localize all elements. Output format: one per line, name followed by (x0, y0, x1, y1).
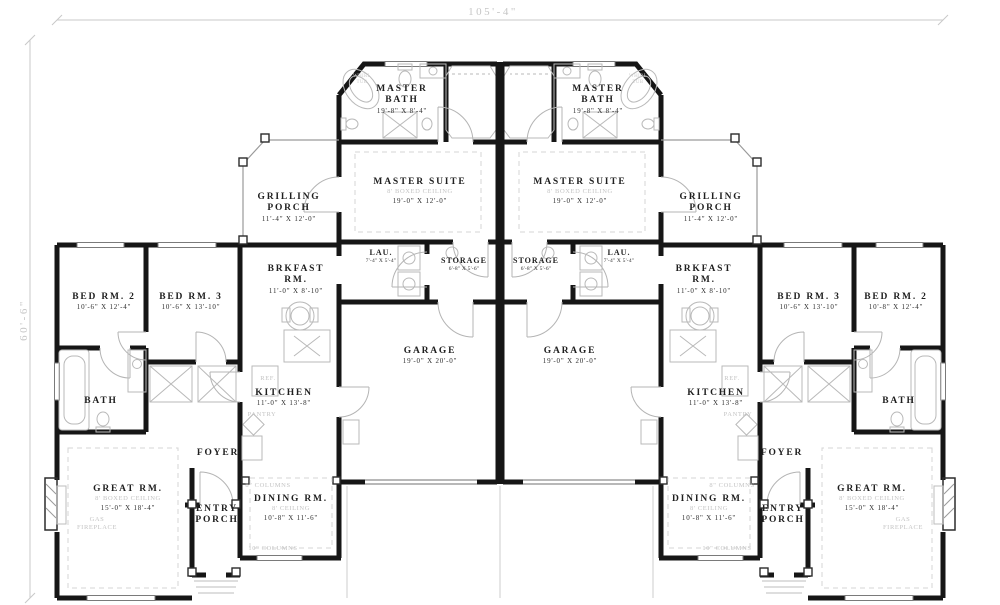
fixture-name: FIREPLACE (883, 524, 923, 532)
room-size: 10'-8" X 12'-4" (869, 303, 923, 312)
columns-note: 10" COLUMNS (248, 545, 297, 553)
room-name: BATH (84, 396, 117, 407)
label-gas-fireplace-left: GAS FIREPLACE (77, 516, 117, 532)
room-size: 10'-6" X 13'-10" (162, 303, 221, 312)
room-name: GREAT RM. (93, 484, 163, 495)
floor-plan-canvas: 105'-4" 60'-6" MASTER BATH 19'-8" X 8'-4… (0, 0, 1000, 605)
driveway-lines (347, 486, 653, 598)
label-grilling-porch-right: GRILLING PORCH 11'-4" X 12'-0" (680, 192, 743, 224)
room-note: 8' BOXED CEILING (547, 188, 613, 196)
room-size: 11'-4" X 12'-0" (262, 215, 316, 224)
label-bath-right: BATH (882, 396, 915, 407)
room-note: 8' BOXED CEILING (839, 495, 905, 503)
label-columns10-left: 10" COLUMNS (248, 545, 297, 553)
label-bed3-left: BED RM. 3 10'-6" X 13'-10" (159, 292, 222, 313)
room-size: 7'-4" X 5'-4" (366, 258, 396, 265)
label-bath-left: BATH (84, 396, 117, 407)
room-name: BRKFAST (268, 264, 325, 275)
fixture-name: GAS (896, 516, 911, 524)
label-bed2-left: BED RM. 2 10'-6" X 12'-4" (72, 292, 135, 313)
room-size: 11'-4" X 12'-0" (684, 215, 738, 224)
room-name: BRKFAST (676, 264, 733, 275)
room-name: BED RM. 2 (864, 292, 927, 303)
room-note: 8' CEILING (690, 505, 728, 513)
label-pantry-right: PANTRY (724, 411, 753, 419)
label-ref-right: REF. (724, 375, 739, 383)
room-name: ENTRY (196, 504, 238, 515)
room-name: PORCH (689, 203, 732, 214)
room-name: PANTRY (724, 411, 753, 419)
room-name: GARAGE (404, 346, 457, 357)
label-brkfast-left: BRKFAST RM. 11'-0" X 8'-10" (268, 264, 325, 296)
room-name: BED RM. 3 (777, 292, 840, 303)
columns-note: 8" COLUMNS (709, 482, 754, 490)
room-name: LAU. (370, 248, 393, 258)
room-size: 19'-0" X 12'-0" (393, 197, 447, 206)
room-name: KITCHEN (687, 388, 744, 399)
label-master-suite-right: MASTER SUITE 8' BOXED CEILING 19'-0" X 1… (533, 177, 626, 206)
room-name: PORCH (761, 515, 804, 526)
label-dining-left: DINING RM. 8' CEILING 10'-8" X 11'-6" (254, 494, 328, 523)
room-name: KITCHEN (255, 388, 312, 399)
room-note: 8' BOXED CEILING (95, 495, 161, 503)
room-size: 6'-8" X 5'-6" (449, 266, 479, 273)
room-size: 19'-0" X 20'-0" (403, 357, 457, 366)
fixture-name: REF. (260, 375, 275, 383)
room-name: PORCH (267, 203, 310, 214)
room-size: 11'-0" X 8'-10" (677, 287, 731, 296)
room-name: GRILLING (680, 192, 743, 203)
fixture-name: GAS (90, 516, 105, 524)
room-size: 15'-0" X 18'-4" (845, 504, 899, 513)
door-swings (100, 107, 488, 505)
label-master-bath-left: MASTER BATH 19'-8" X 8'-4" (376, 84, 427, 116)
label-garage-left: GARAGE 19'-0" X 20'-0" (403, 346, 457, 367)
fixture-name: TUB (357, 80, 368, 86)
fixture-name: TUB (633, 80, 644, 86)
room-size: 19'-0" X 20'-0" (543, 357, 597, 366)
room-name: STORAGE (441, 256, 487, 266)
room-name: DINING RM. (254, 494, 328, 505)
room-size: 10'-6" X 13'-10" (780, 303, 839, 312)
room-size: 19'-8" X 8'-4" (377, 107, 427, 116)
room-name: FOYER (761, 448, 803, 459)
label-ref-left: REF. (260, 375, 275, 383)
room-name: PORCH (195, 515, 238, 526)
room-name: MASTER SUITE (533, 177, 626, 188)
label-foyer-right: FOYER (761, 448, 803, 459)
label-gas-fireplace-right: GAS FIREPLACE (883, 516, 923, 532)
fireplace (45, 478, 66, 530)
room-size: 11'-0" X 13'-8" (257, 399, 311, 408)
columns-note: 10" COLUMNS (702, 545, 751, 553)
room-size: 6'-8" X 5'-6" (521, 266, 551, 273)
room-name: RM. (692, 275, 716, 286)
room-size: 19'-0" X 12'-0" (553, 197, 607, 206)
room-name: ENTRY (762, 504, 804, 515)
room-size: 19'-8" X 8'-4" (573, 107, 623, 116)
label-great-rm-left: GREAT RM. 8' BOXED CEILING 15'-0" X 18'-… (93, 484, 163, 513)
fixture-name: REF. (724, 375, 739, 383)
room-name: BED RM. 2 (72, 292, 135, 303)
label-bed3-right: BED RM. 3 10'-6" X 13'-10" (777, 292, 840, 313)
label-grilling-porch-left: GRILLING PORCH 11'-4" X 12'-0" (258, 192, 321, 224)
label-whirl-tub-right: WHIRL TUB (629, 74, 647, 86)
room-name: FOYER (197, 448, 239, 459)
room-name: MASTER (376, 84, 427, 95)
room-name: GREAT RM. (837, 484, 907, 495)
room-name: BATH (581, 95, 614, 106)
label-master-suite-left: MASTER SUITE 8' BOXED CEILING 19'-0" X 1… (373, 177, 466, 206)
label-kitchen-right: KITCHEN 11'-0" X 13'-8" (687, 388, 744, 409)
label-columns10-right: 10" COLUMNS (702, 545, 751, 553)
party-wall (496, 62, 505, 484)
room-size: 10'-8" X 11'-6" (682, 514, 736, 523)
label-brkfast-right: BRKFAST RM. 11'-0" X 8'-10" (676, 264, 733, 296)
label-storage-left: STORAGE 6'-8" X 5'-6" (441, 256, 487, 273)
room-name: LAU. (608, 248, 631, 258)
label-columns8-left: 8" COLUMNS (245, 482, 290, 490)
room-name: BATH (882, 396, 915, 407)
label-columns8-right: 8" COLUMNS (709, 482, 754, 490)
label-master-bath-right: MASTER BATH 19'-8" X 8'-4" (572, 84, 623, 116)
porch-steps (194, 581, 238, 593)
room-note: 8' BOXED CEILING (387, 188, 453, 196)
label-dining-right: DINING RM. 8' CEILING 10'-8" X 11'-6" (672, 494, 746, 523)
label-laundry-right: LAU. 7'-4" X 5'-4" (604, 248, 634, 265)
room-size: 10'-8" X 11'-6" (264, 514, 318, 523)
room-name: DINING RM. (672, 494, 746, 505)
room-name: MASTER (572, 84, 623, 95)
room-size: 11'-0" X 8'-10" (269, 287, 323, 296)
overall-height-dimension: 60'-6" (18, 299, 30, 341)
overall-width-dimension: 105'-4" (468, 6, 518, 18)
label-foyer-left: FOYER (197, 448, 239, 459)
columns-note: 8" COLUMNS (245, 482, 290, 490)
porch-outline (243, 140, 339, 242)
room-name: GRILLING (258, 192, 321, 203)
label-entry-porch-right: ENTRY PORCH (761, 504, 804, 527)
room-size: 15'-0" X 18'-4" (101, 504, 155, 513)
room-name: BED RM. 3 (159, 292, 222, 303)
room-size: 11'-0" X 13'-8" (689, 399, 743, 408)
room-name: PANTRY (248, 411, 277, 419)
room-size: 10'-6" X 12'-4" (77, 303, 131, 312)
room-name: MASTER SUITE (373, 177, 466, 188)
room-size: 7'-4" X 5'-4" (604, 258, 634, 265)
room-note: 8' CEILING (272, 505, 310, 513)
label-storage-right: STORAGE 6'-8" X 5'-6" (513, 256, 559, 273)
floor-plan-linework (0, 0, 1000, 605)
label-laundry-left: LAU. 7'-4" X 5'-4" (366, 248, 396, 265)
label-whirl-tub-left: WHIRL TUB (353, 74, 371, 86)
label-kitchen-left: KITCHEN 11'-0" X 13'-8" (255, 388, 312, 409)
room-name: GARAGE (544, 346, 597, 357)
fixture-name: FIREPLACE (77, 524, 117, 532)
label-pantry-left: PANTRY (248, 411, 277, 419)
room-name: RM. (284, 275, 308, 286)
label-bed2-right: BED RM. 2 10'-8" X 12'-4" (864, 292, 927, 313)
label-garage-right: GARAGE 19'-0" X 20'-0" (543, 346, 597, 367)
label-great-rm-right: GREAT RM. 8' BOXED CEILING 15'-0" X 18'-… (837, 484, 907, 513)
room-name: BATH (385, 95, 418, 106)
garage-door (365, 480, 477, 484)
label-entry-porch-left: ENTRY PORCH (195, 504, 238, 527)
room-name: STORAGE (513, 256, 559, 266)
